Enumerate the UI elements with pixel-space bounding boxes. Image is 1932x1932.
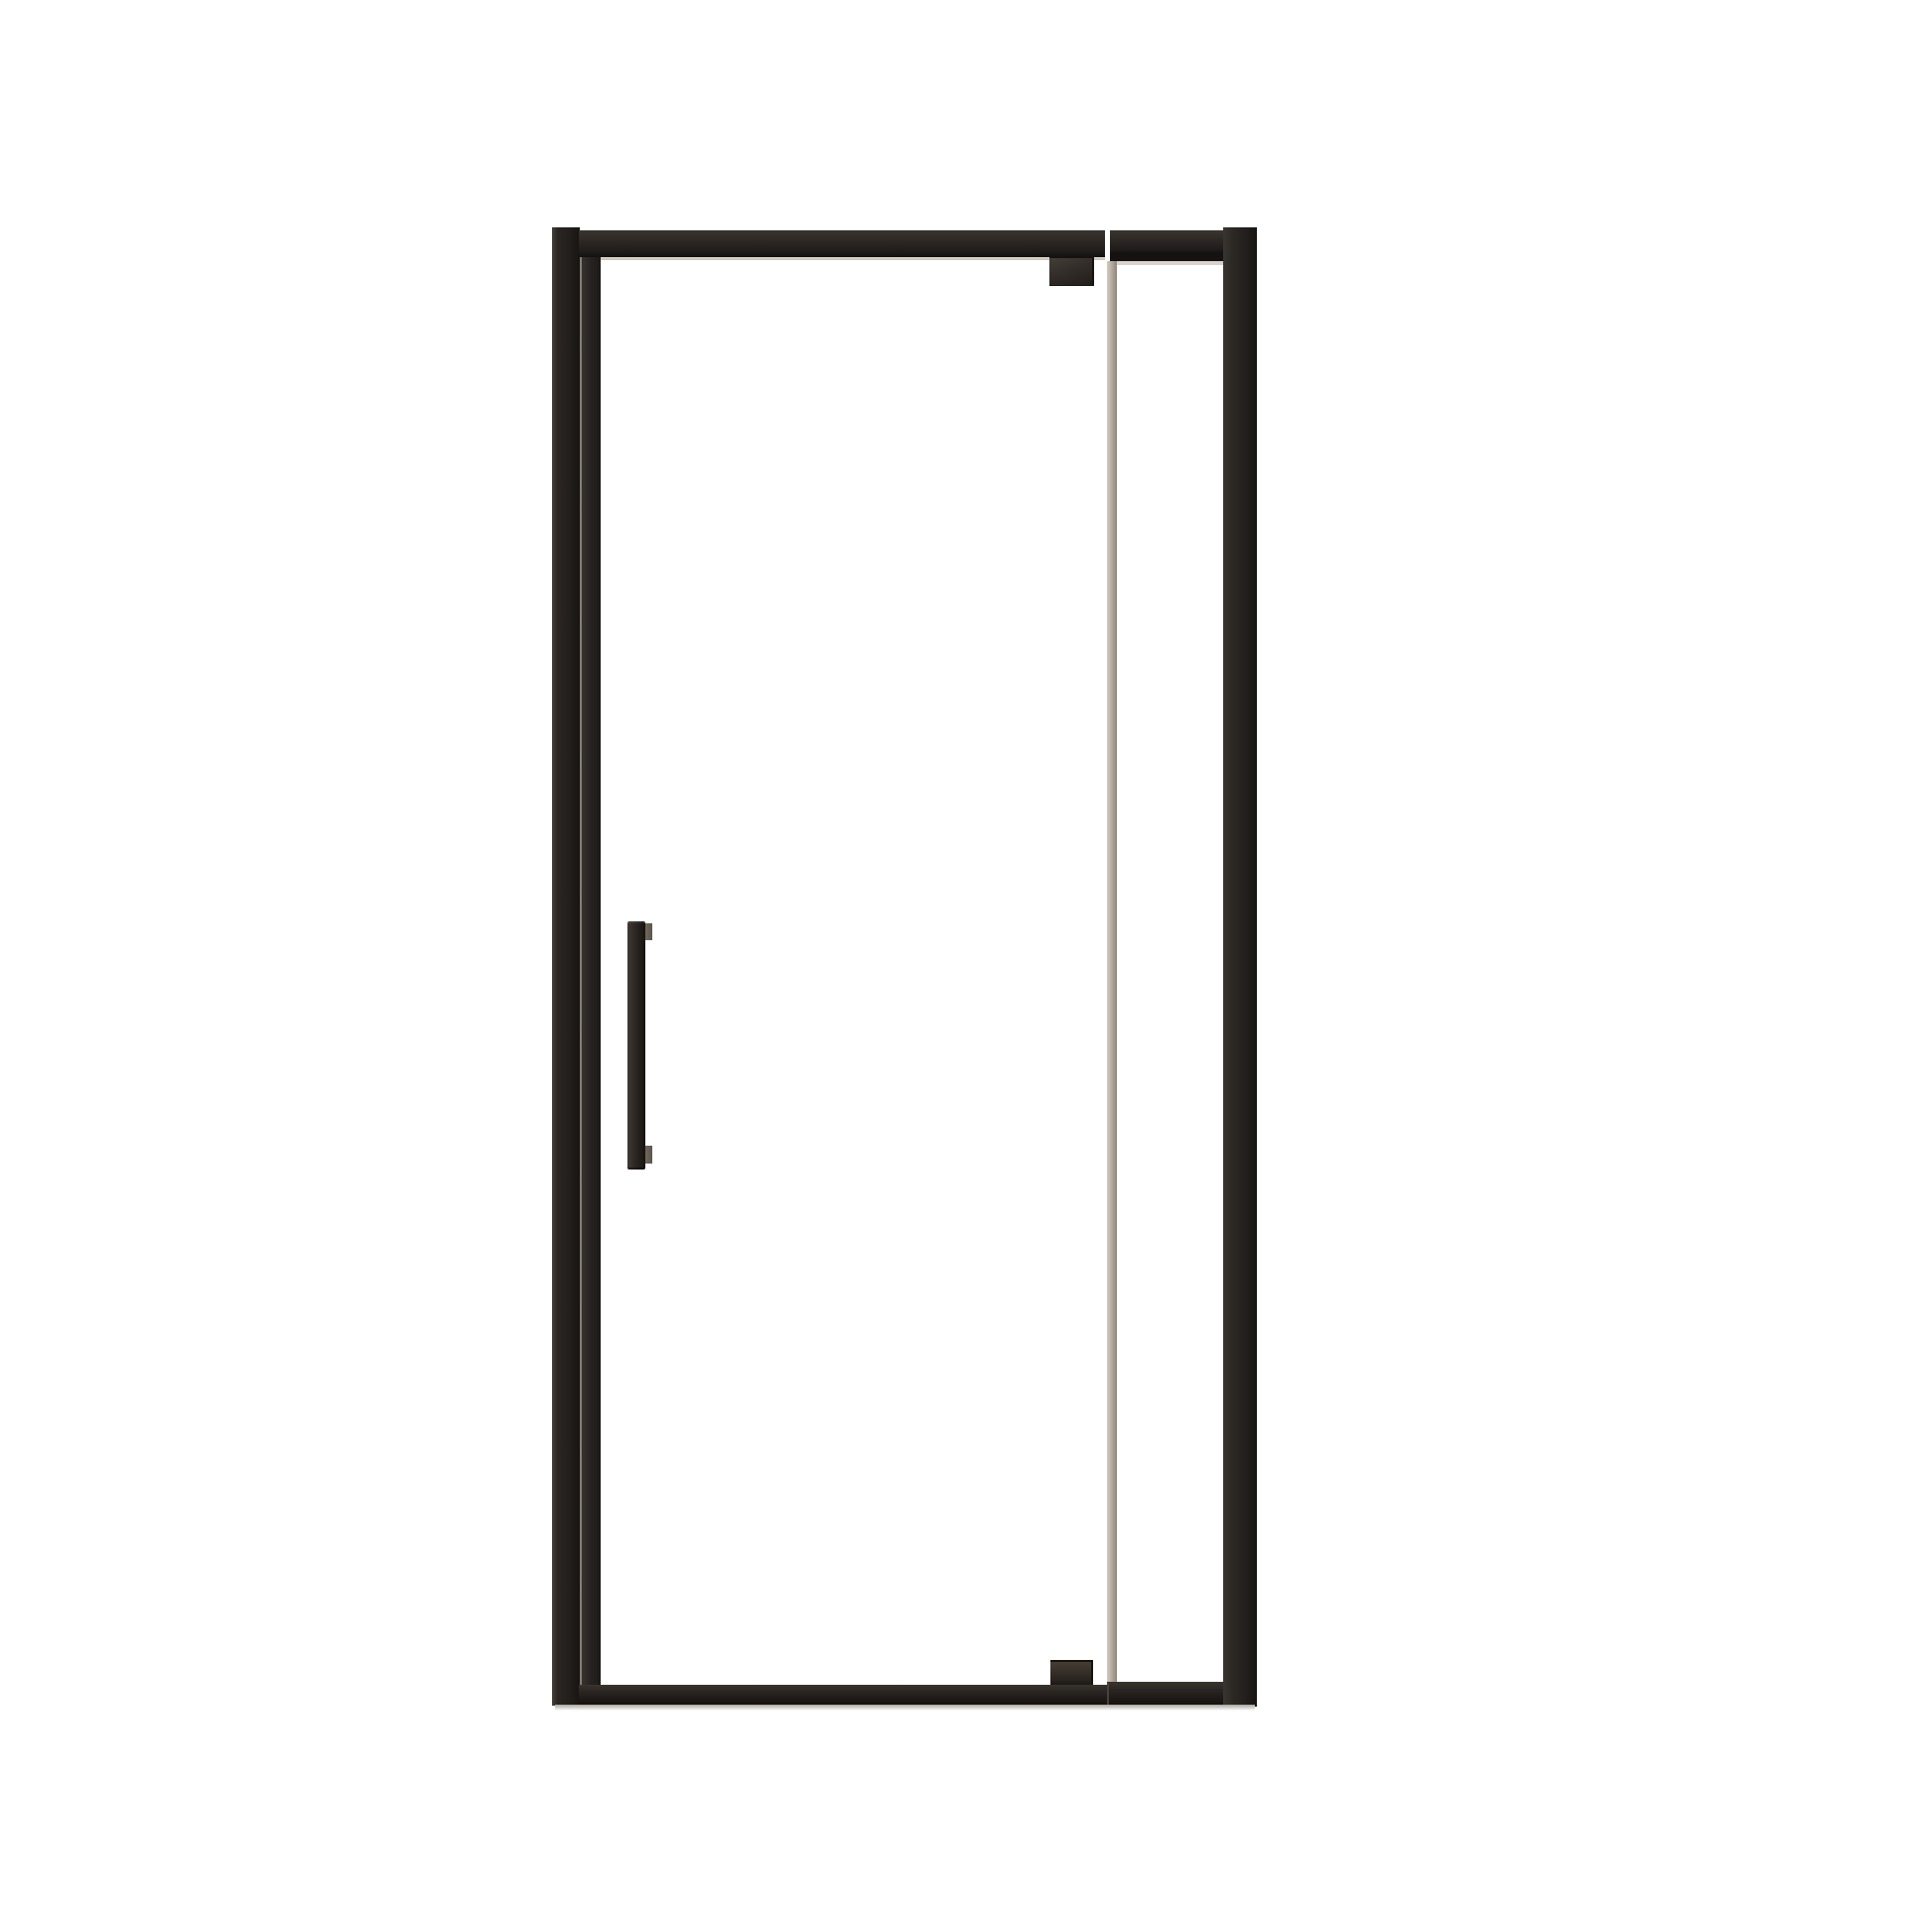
bottom-rail-seam [1107, 1683, 1109, 1705]
product-photo-canvas [0, 0, 1932, 1932]
bottom-rail-door-segment [579, 1685, 1107, 1705]
bottom-rail-fixed-segment [1107, 1682, 1223, 1705]
floor-contact-shadow [555, 1705, 1255, 1711]
bottom-pivot-clamp [1050, 1660, 1093, 1685]
door-glass-panel [601, 260, 1105, 1685]
door-glass-top-edge-highlight [601, 257, 1105, 260]
top-rail-door-segment [579, 230, 1105, 257]
fixed-glass-top-edge-highlight [1114, 261, 1223, 265]
top-pivot-clamp [1049, 256, 1094, 286]
right-post [1223, 227, 1257, 1707]
fixed-glass-panel [1117, 265, 1223, 1682]
left-wall-jamb [552, 227, 580, 1706]
handle-bar [627, 921, 645, 1170]
top-rail-fixed-segment [1110, 230, 1223, 254]
fixed-panel-glass-edge-strip [1107, 261, 1117, 1683]
top-rail-fixed-bottom-lip [1110, 254, 1223, 261]
door-hinge-stile [582, 257, 601, 1685]
